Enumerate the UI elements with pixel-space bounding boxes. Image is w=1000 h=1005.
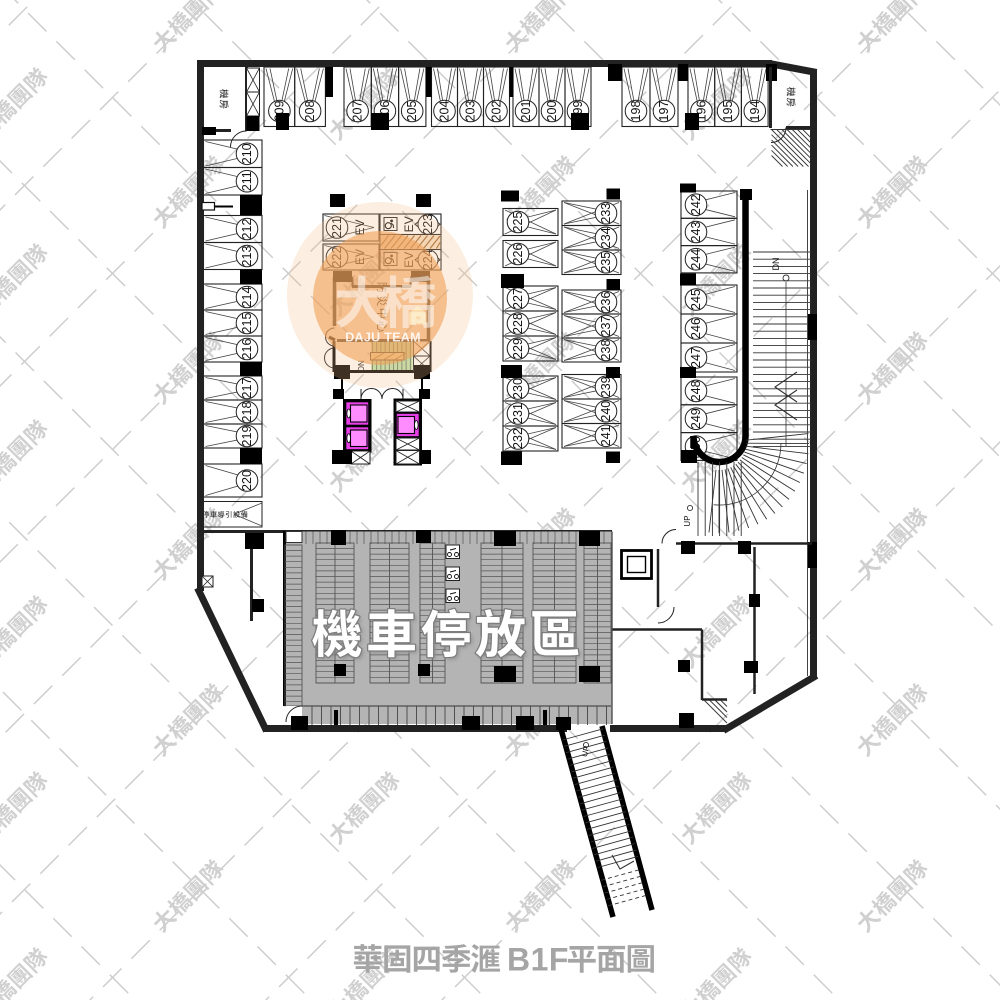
svg-text:248: 248 bbox=[689, 380, 703, 401]
svg-text:219: 219 bbox=[240, 426, 254, 447]
svg-text:239: 239 bbox=[599, 376, 613, 397]
svg-text:233: 233 bbox=[599, 203, 613, 224]
svg-text:DAJU TEAM: DAJU TEAM bbox=[345, 331, 421, 345]
svg-text:203: 203 bbox=[464, 101, 478, 122]
svg-text:195: 195 bbox=[721, 101, 735, 122]
svg-text:212: 212 bbox=[240, 219, 254, 240]
svg-text:227: 227 bbox=[511, 288, 525, 309]
svg-text:211: 211 bbox=[240, 171, 254, 191]
svg-text:216: 216 bbox=[240, 339, 254, 360]
svg-text:232: 232 bbox=[511, 428, 525, 449]
svg-text:245: 245 bbox=[689, 289, 703, 310]
svg-text:B1F: B1F bbox=[507, 942, 569, 978]
svg-text:243: 243 bbox=[689, 222, 703, 243]
svg-text:215: 215 bbox=[240, 313, 254, 334]
svg-text:200: 200 bbox=[545, 101, 559, 122]
svg-text:208: 208 bbox=[303, 101, 317, 122]
svg-text:230: 230 bbox=[511, 378, 525, 399]
svg-text:236: 236 bbox=[599, 292, 613, 313]
svg-text:198: 198 bbox=[629, 101, 643, 122]
svg-text:220: 220 bbox=[240, 470, 254, 491]
svg-text:197: 197 bbox=[657, 101, 671, 122]
svg-text:217: 217 bbox=[240, 378, 254, 399]
svg-text:237: 237 bbox=[599, 316, 613, 337]
svg-text:234: 234 bbox=[599, 227, 613, 248]
svg-text:213: 213 bbox=[240, 246, 254, 267]
svg-text:225: 225 bbox=[511, 212, 525, 233]
svg-text:DN: DN bbox=[771, 258, 781, 271]
svg-text:246: 246 bbox=[689, 318, 703, 339]
svg-text:247: 247 bbox=[689, 347, 703, 368]
svg-text:238: 238 bbox=[599, 340, 613, 361]
svg-text:240: 240 bbox=[599, 401, 613, 422]
svg-text:194: 194 bbox=[748, 101, 762, 122]
svg-text:UP: UP bbox=[683, 515, 692, 526]
svg-text:207: 207 bbox=[351, 101, 365, 122]
svg-text:228: 228 bbox=[511, 313, 525, 334]
svg-text:242: 242 bbox=[689, 194, 703, 215]
svg-text:249: 249 bbox=[689, 408, 703, 429]
svg-text:205: 205 bbox=[405, 101, 419, 122]
svg-text:241: 241 bbox=[599, 425, 613, 446]
svg-text:229: 229 bbox=[511, 338, 525, 359]
svg-text:202: 202 bbox=[490, 101, 504, 122]
svg-text:214: 214 bbox=[240, 287, 254, 308]
svg-text:218: 218 bbox=[240, 402, 254, 423]
svg-text:231: 231 bbox=[511, 403, 525, 424]
svg-text:201: 201 bbox=[519, 101, 533, 122]
svg-text:210: 210 bbox=[240, 143, 254, 164]
svg-text:204: 204 bbox=[438, 101, 452, 122]
svg-text:235: 235 bbox=[599, 252, 613, 273]
svg-text:244: 244 bbox=[689, 249, 703, 270]
svg-text:226: 226 bbox=[511, 244, 525, 265]
